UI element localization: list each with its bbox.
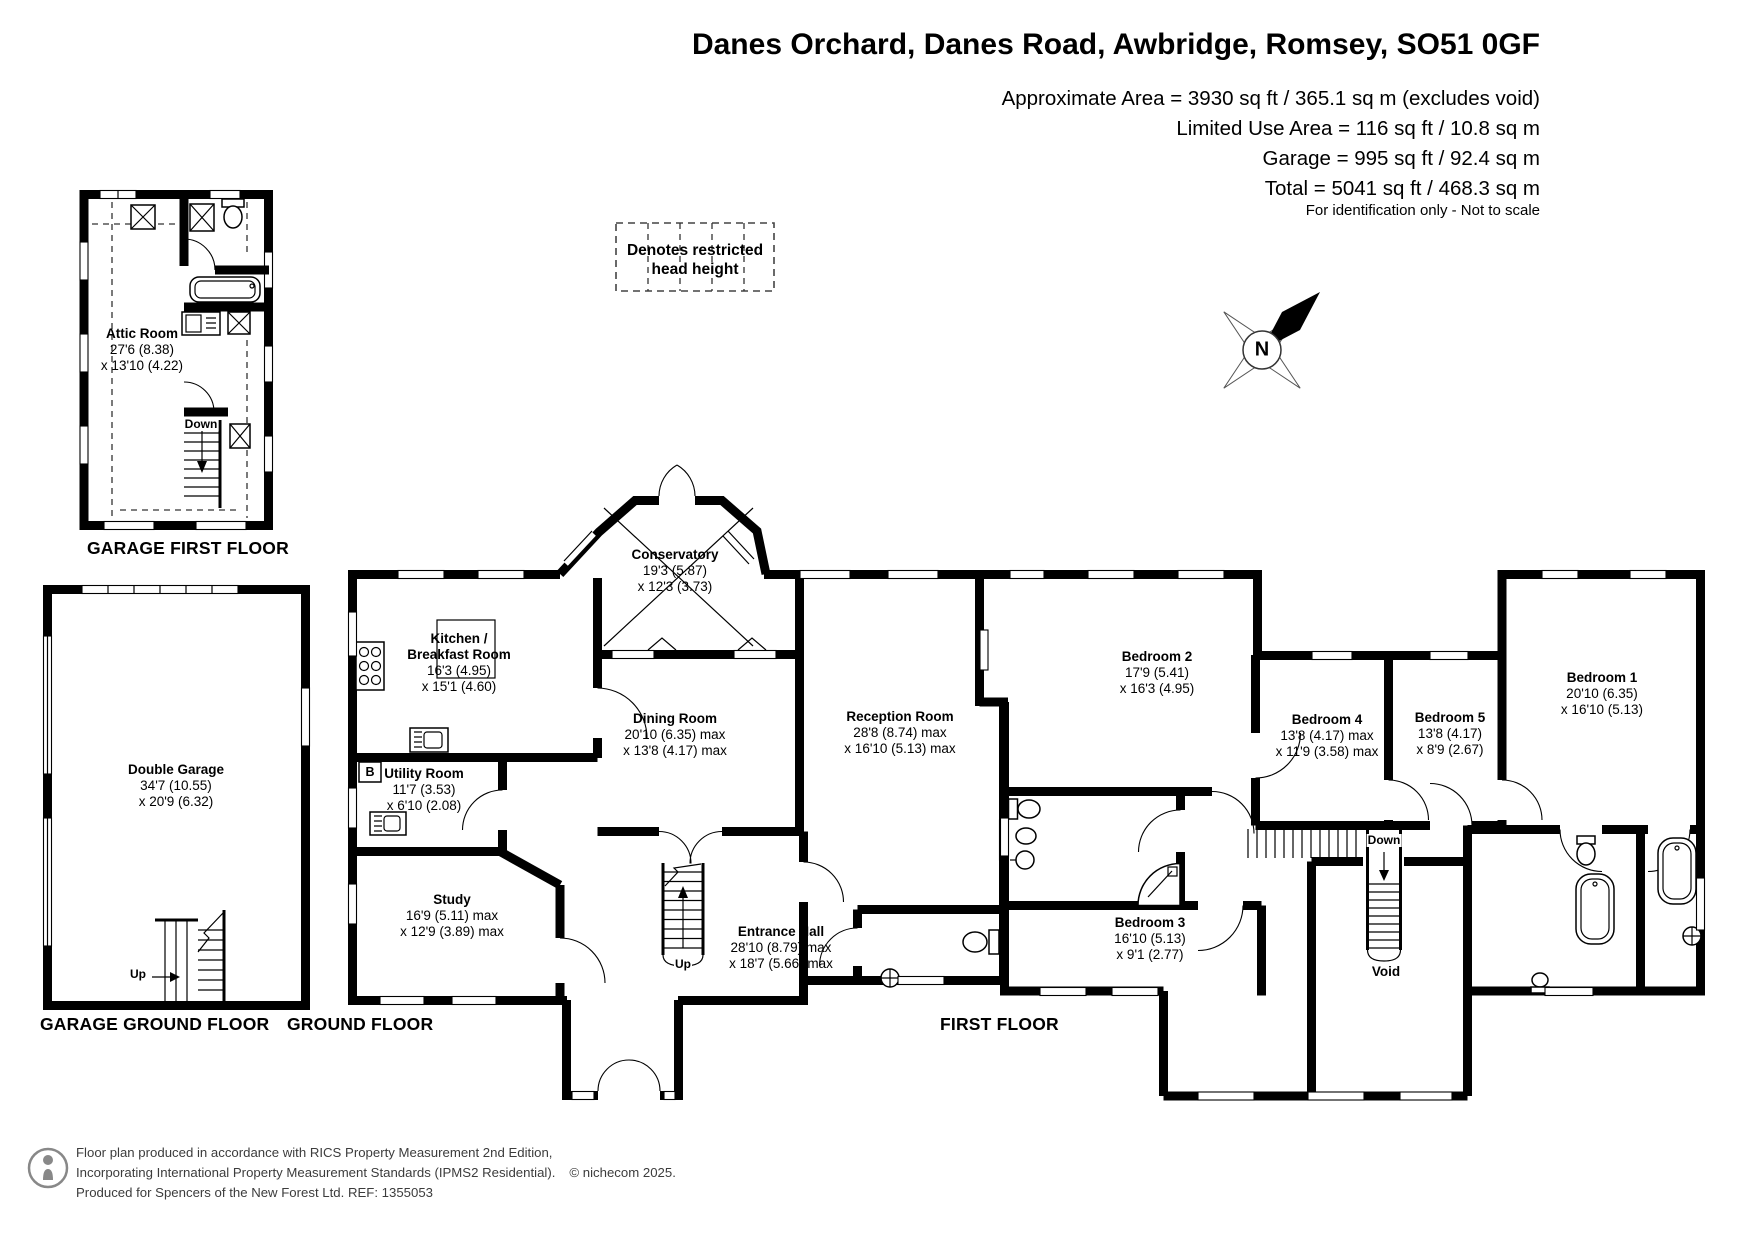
stair-label-up: Up [674,958,692,971]
caption-ground-floor: GROUND FLOOR [287,1014,433,1035]
bathtub-icon [190,277,260,302]
room-label-bedroom5: Bedroom 5 13'8 (4.17) x 8'9 (2.67) [1415,710,1486,758]
area-line: Total = 5041 sq ft / 468.3 sq m [1002,174,1540,204]
sink-icon [182,312,220,335]
caption-first-floor: FIRST FLOOR [940,1014,1059,1035]
compass-north-label: N [1255,339,1269,362]
scale-disclaimer: For identification only - Not to scale [1306,202,1540,219]
first-floor-plan [980,570,1705,1101]
area-line: Approximate Area = 3930 sq ft / 365.1 sq… [1002,84,1540,114]
area-line: Garage = 995 sq ft / 92.4 sq m [1002,144,1540,174]
toilet-icon [1577,836,1595,865]
garage-door [44,636,52,774]
page-title: Danes Orchard, Danes Road, Awbridge, Rom… [692,28,1540,62]
room-label-bedroom3: Bedroom 3 16'10 (5.13) x 9'1 (2.77) [1114,915,1186,963]
garage-door [44,818,52,946]
footer-disclaimer: Floor plan produced in accordance with R… [76,1143,676,1203]
copyright: © nichecom 2025. [569,1165,676,1180]
bathtub-icon [1658,838,1696,904]
footer-line: Produced for Spencers of the New Forest … [76,1183,676,1203]
room-label-reception: Reception Room 28'8 (8.74) max x 16'10 (… [844,709,955,757]
skylight-icon [228,312,250,334]
floorplan-page: Danes Orchard, Danes Road, Awbridge, Rom… [0,0,1755,1241]
footer-line: Incorporating International Property Mea… [76,1163,676,1183]
sink-icon [410,728,448,752]
caption-garage-ground-floor: GARAGE GROUND FLOOR [40,1014,269,1035]
room-label-study: Study 16'9 (5.11) max x 12'9 (3.89) max [400,892,504,940]
light-symbol-icon [881,969,899,987]
stair-label-down: Down [1367,834,1402,847]
skylight-icon [131,205,155,229]
room-label-dining: Dining Room 20'10 (6.35) max x 13'8 (4.1… [623,711,727,759]
bathtub-icon [1576,874,1614,944]
void-label: Void [1372,964,1400,979]
area-line: Limited Use Area = 116 sq ft / 10.8 sq m [1002,114,1540,144]
boiler-label: B [365,765,374,779]
sink-icon [370,812,406,835]
area-summary: Approximate Area = 3930 sq ft / 365.1 sq… [1002,84,1540,204]
room-label-kitchen: Kitchen / Breakfast Room 16'3 (4.95) x 1… [407,631,511,695]
toilet-icon [963,930,999,954]
room-label-double-garage: Double Garage 34'7 (10.55) x 20'9 (6.32) [128,762,224,810]
stair-label-down: Down [184,418,219,431]
shower-icon [190,204,214,231]
nichecom-logo-icon [29,1149,67,1187]
hob-icon [356,642,384,690]
room-label-bedroom1: Bedroom 1 20'10 (6.35) x 16'10 (5.13) [1561,670,1643,718]
restricted-height-legend: Denotes restricted head height [627,241,763,280]
room-label-utility: Utility Room 11'7 (3.53) x 6'10 (2.08) [384,766,464,814]
caption-garage-first-floor: GARAGE FIRST FLOOR [87,538,289,559]
stair-label-up: Up [129,968,147,981]
skylight-icon [230,424,250,448]
room-label-entrance-hall: Entrance Hall 28'10 (8.79) max x 18'7 (5… [729,924,833,972]
room-label-bedroom4: Bedroom 4 13'8 (4.17) max x 11'9 (3.58) … [1276,712,1379,760]
room-label-conservatory: Conservatory 19'3 (5.87) x 12'3 (3.73) [631,547,718,595]
toilet-icon [222,199,244,228]
toilet-icon [1009,799,1041,819]
basin-icon [1016,828,1036,844]
room-label-bedroom2: Bedroom 2 17'9 (5.41) x 16'3 (4.95) [1120,649,1195,697]
footer-line: Floor plan produced in accordance with R… [76,1143,676,1163]
room-label-attic: Attic Room 27'6 (8.38) x 13'10 (4.22) [101,326,183,374]
